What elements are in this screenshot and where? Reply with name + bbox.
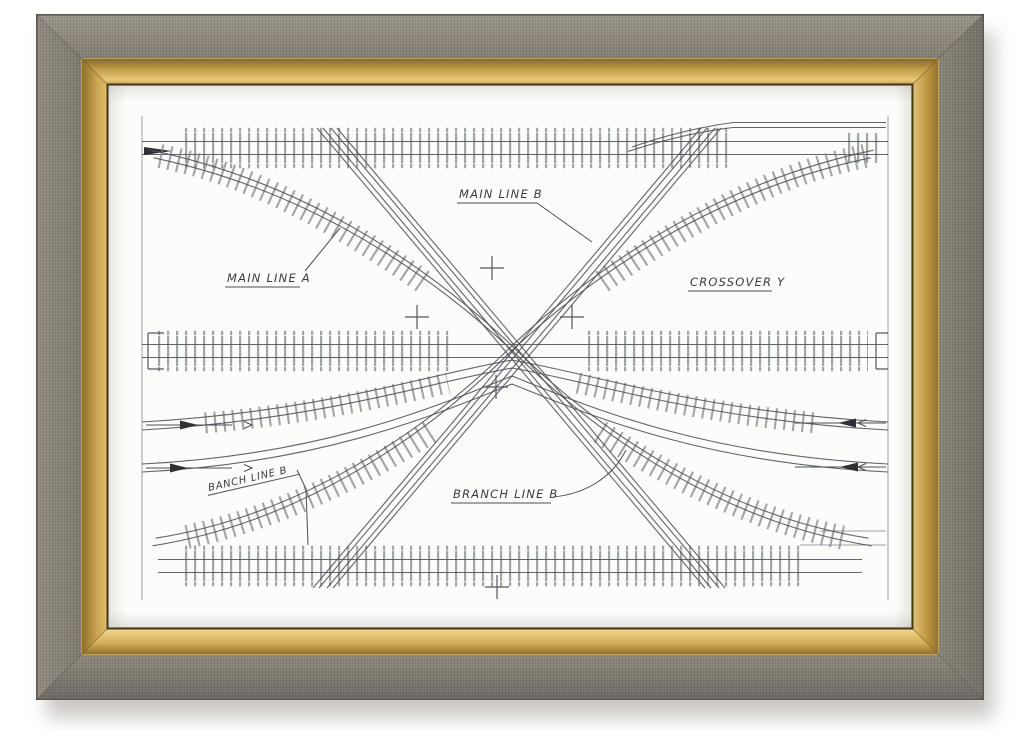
paper-shadow-bottom <box>109 611 911 627</box>
gold-band-bottom <box>81 629 939 655</box>
gold-band-top <box>81 58 939 84</box>
paper-shadow-top <box>109 86 911 102</box>
label-branch-line-b: BRANCH LINE B <box>453 487 559 501</box>
framed-artwork-photo: MAIN LINE B MAIN LINE A CROSSOVER Y BANC… <box>0 0 1024 731</box>
gold-band-right <box>913 58 939 655</box>
label-main-line-b: MAIN LINE B <box>459 187 543 201</box>
paper-shadow-left <box>109 86 125 627</box>
paper-shadow-right <box>895 86 911 627</box>
gold-band-left <box>81 58 107 655</box>
label-main-line-a: MAIN LINE A <box>227 271 311 285</box>
artwork-canvas: MAIN LINE B MAIN LINE A CROSSOVER Y BANC… <box>0 0 1024 731</box>
label-crossover-y: CROSSOVER Y <box>690 275 785 289</box>
